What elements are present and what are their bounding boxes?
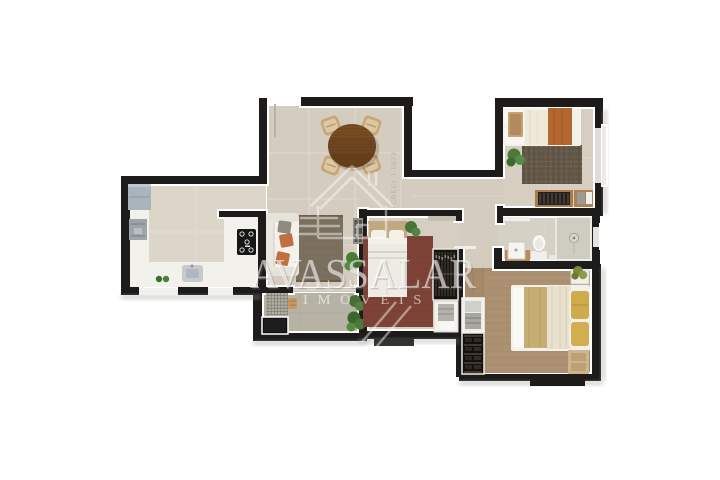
svg-text:AVASSALAR: AVASSALAR: [250, 252, 476, 298]
svg-text:CRECI J-5072: CRECI J-5072: [391, 151, 398, 205]
svg-text:IMÓVEIS: IMÓVEIS: [303, 291, 431, 308]
